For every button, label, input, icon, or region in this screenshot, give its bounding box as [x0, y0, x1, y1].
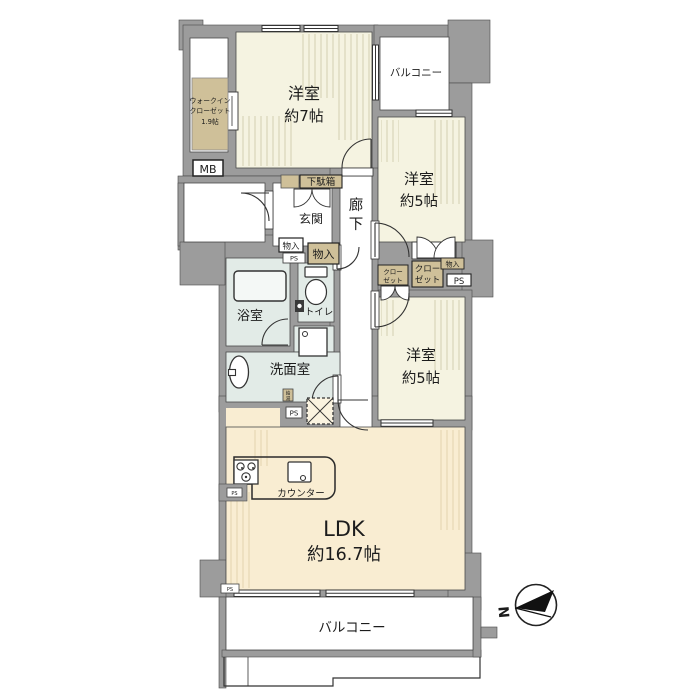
wall-segment [222, 650, 481, 657]
pipe-space-label: PS [290, 255, 298, 263]
bedroom7-size: 約7帖 [284, 107, 324, 125]
burner-dot [245, 476, 247, 478]
ldk-label: LDK [323, 517, 366, 541]
closet-large-label-1: クロー [415, 265, 441, 275]
shoe-box-side [281, 175, 299, 188]
door-opening [342, 168, 373, 176]
water-heater-label-2: 湯 [286, 395, 291, 402]
genkan-label: 玄関 [299, 211, 323, 226]
water-heater-label-1: 給 [286, 390, 291, 397]
bedroom7-label: 洋室 [288, 84, 320, 103]
hatch [381, 300, 395, 336]
bath-label: 浴室 [237, 308, 263, 324]
hatch [228, 492, 250, 588]
kitchen-sink-icon [288, 462, 311, 482]
wall-segment [180, 242, 225, 285]
compass: N [497, 585, 557, 626]
hatch [381, 120, 399, 162]
counter-label: カウンター [277, 489, 325, 500]
wic-label-3: 1.9帖 [201, 117, 219, 126]
bedroom5a-size: 約5帖 [400, 193, 438, 210]
entry-alcove-floor [184, 183, 265, 242]
wall-segment [219, 597, 226, 688]
wall-segment [473, 597, 481, 657]
balcony-bottom-label: バルコニー [318, 620, 385, 636]
wall-segment [448, 20, 490, 83]
wall-segment [178, 183, 184, 246]
faucet-icon [229, 370, 236, 376]
pipe-space-label: PS [231, 491, 237, 497]
hallway-label-2: 下 [349, 217, 364, 233]
paper-holder-dot [297, 304, 301, 308]
closet-small-label-2: ゼット [383, 276, 403, 285]
washroom-label: 洗面室 [270, 361, 311, 378]
pipe-space-label: PS [227, 587, 233, 593]
floor-plan-page: N 洋室 約7帖 洋室 約5帖 洋室 約5帖 LDK 約16.7帖 浴室 トイレ… [0, 0, 700, 700]
wall-segment [481, 627, 497, 638]
bathtub-icon [234, 271, 286, 301]
door-opening [333, 375, 341, 403]
burner-dot [241, 467, 243, 469]
balcony-step-outline [224, 657, 480, 686]
hatch [432, 300, 463, 370]
toilet-tank-icon [305, 267, 327, 277]
hallway-floor [340, 176, 372, 430]
hatch [338, 34, 371, 140]
storage-tan-label: 物入 [313, 247, 335, 261]
toilet-label: トイレ [305, 307, 334, 318]
meter-box-label: MB [199, 163, 216, 176]
hatch [440, 430, 464, 530]
hallway-label-1: 廊 [349, 197, 364, 214]
shoe-box-label: 下駄箱 [307, 176, 336, 188]
closet-small-label-1: クロー [383, 268, 403, 276]
ldk-size: 約16.7帖 [307, 545, 381, 565]
door-opening [265, 191, 273, 229]
bedroom5a-label: 洋室 [404, 170, 434, 188]
compass-north-label: N [497, 605, 514, 618]
pipe-space-label: PS [454, 277, 465, 287]
burner-dot [252, 467, 254, 469]
toilet-bowl-icon [306, 280, 327, 305]
kitchen-floor [226, 408, 280, 427]
bedroom5b-label: 洋室 [406, 346, 436, 364]
wall-segment [462, 240, 493, 297]
storage-white-label: 物入 [282, 241, 300, 252]
balcony-top-label: バルコニー [390, 67, 442, 79]
bedroom5b-size: 約5帖 [402, 370, 440, 387]
floor-plan: N 洋室 約7帖 洋室 約5帖 洋室 約5帖 LDK 約16.7帖 浴室 トイレ… [0, 0, 700, 700]
hatch [432, 120, 463, 204]
pipe-space-label: PS [290, 410, 299, 418]
storage-tiny-label: 物入 [446, 260, 460, 269]
wic-label-1: ウォークイン [190, 97, 231, 105]
wic-label-2: クローゼット [190, 106, 231, 115]
closet-large-label-2: ゼット [415, 275, 441, 286]
